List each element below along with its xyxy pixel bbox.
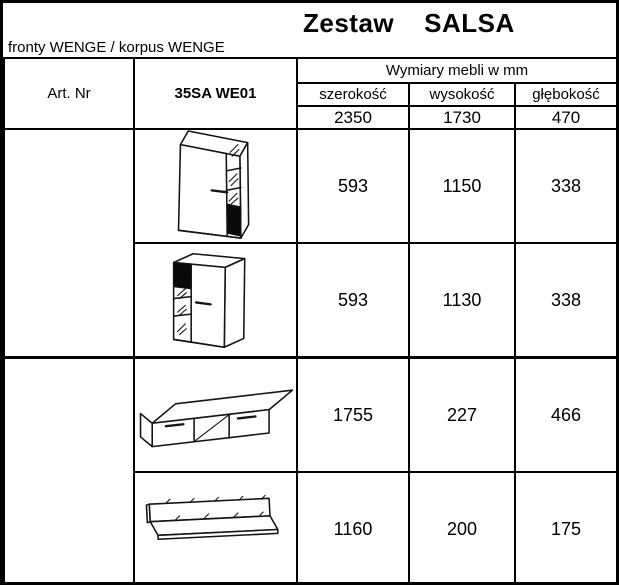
title-word-zestaw: Zestaw — [303, 10, 394, 36]
tv-stand-icon — [136, 359, 296, 471]
art-nr-cell-upper — [4, 129, 134, 358]
page-title: Zestaw SALSA — [3, 3, 616, 36]
spec-sheet: Zestaw SALSA fronty WENGE / korpus WENGE… — [0, 0, 619, 585]
item-width: 1160 — [297, 472, 409, 585]
cabinet-glass-left-icon — [136, 244, 296, 356]
item-height: 227 — [409, 358, 515, 473]
dims-header: Wymiary mebli w mm — [297, 58, 617, 83]
art-nr-cell-lower — [4, 358, 134, 585]
cabinet-glass-right-icon — [136, 130, 296, 242]
set-height-value: 1730 — [409, 106, 515, 129]
wall-shelf-icon — [136, 474, 296, 584]
finish-subtitle: fronty WENGE / korpus WENGE — [3, 36, 616, 57]
art-nr-header: Art. Nr — [4, 58, 134, 129]
item-depth: 338 — [515, 243, 617, 358]
item-width: 593 — [297, 243, 409, 358]
cabinet-glass-left-drawing — [134, 243, 297, 358]
item-depth: 175 — [515, 472, 617, 585]
item-width: 1755 — [297, 358, 409, 473]
col-header-height: wysokość — [409, 83, 515, 106]
item-height: 200 — [409, 472, 515, 585]
set-width-value: 2350 — [297, 106, 409, 129]
item-depth: 338 — [515, 129, 617, 243]
dimensions-table: Art. Nr 35SA WE01 Wymiary mebli w mm sze… — [3, 57, 618, 585]
item-height: 1150 — [409, 129, 515, 243]
col-header-width: szerokość — [297, 83, 409, 106]
table-row: 1755 227 466 — [4, 358, 617, 473]
set-depth-value: 470 — [515, 106, 617, 129]
title-word-salsa: SALSA — [424, 10, 515, 36]
wall-shelf-drawing — [134, 472, 297, 585]
cabinet-glass-right-drawing — [134, 129, 297, 243]
item-depth: 466 — [515, 358, 617, 473]
col-header-depth: głębokość — [515, 83, 617, 106]
item-width: 593 — [297, 129, 409, 243]
tv-stand-drawing — [134, 358, 297, 473]
item-height: 1130 — [409, 243, 515, 358]
table-row: 593 1150 338 — [4, 129, 617, 243]
set-code: 35SA WE01 — [134, 58, 297, 129]
